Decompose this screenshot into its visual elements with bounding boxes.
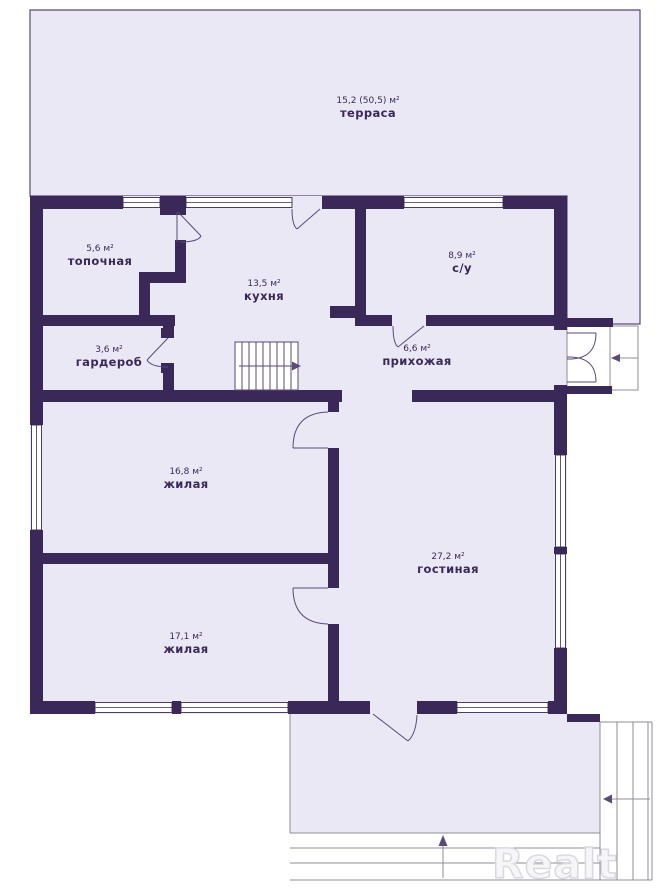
window — [556, 554, 566, 648]
floor-plan: 15,2 (50,5) м² терраса 5,6 м² топочная 1… — [0, 0, 665, 894]
room-label-terrace: 15,2 (50,5) м² терраса — [336, 96, 399, 121]
room-name: терраса — [336, 107, 399, 121]
room-label-living-room-2: 17,1 м² жилая — [163, 632, 208, 657]
room-name: жилая — [163, 478, 208, 492]
window — [95, 703, 172, 713]
house-interior — [30, 196, 567, 714]
room-label-living-room-1: 16,8 м² жилая — [163, 467, 208, 492]
room-name: топочная — [68, 255, 133, 269]
window — [186, 198, 292, 208]
room-name: кухня — [244, 290, 284, 304]
window — [123, 198, 160, 208]
room-name: жилая — [163, 643, 208, 657]
room-label-lounge: 27,2 м² гостиная — [417, 552, 479, 577]
window — [32, 425, 42, 530]
room-name: с/у — [448, 262, 476, 276]
window — [181, 703, 288, 713]
room-label-bathroom: 8,9 м² с/у — [448, 251, 476, 276]
room-label-hallway: 6,6 м² прихожая — [382, 344, 451, 369]
room-name: гардероб — [76, 356, 142, 370]
porch-step-arrow — [439, 835, 448, 878]
watermark-realt: Realt — [492, 840, 618, 888]
room-label-boiler-room: 5,6 м² топочная — [68, 244, 133, 269]
room-label-wardrobe: 3,6 м² гардероб — [76, 345, 142, 370]
staircase — [235, 342, 301, 390]
floor-plan-drawing — [0, 0, 665, 894]
window — [457, 703, 548, 713]
room-label-kitchen: 13,5 м² кухня — [244, 279, 284, 304]
room-name: гостиная — [417, 563, 479, 577]
window — [556, 455, 566, 547]
window — [404, 198, 503, 208]
room-name: прихожая — [382, 355, 451, 369]
